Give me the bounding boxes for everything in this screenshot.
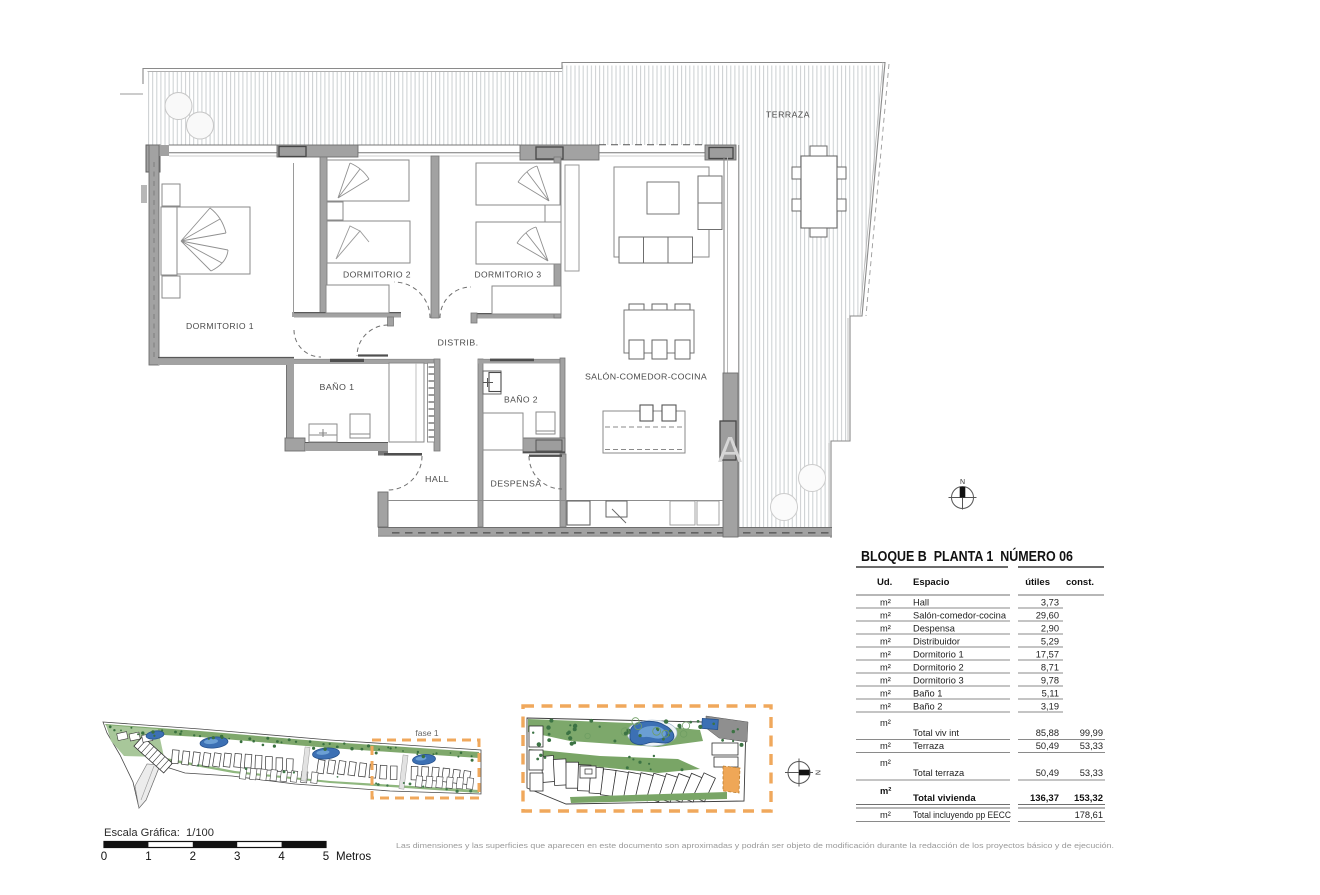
svg-text:Dormitorio 1: Dormitorio 1 xyxy=(913,650,964,660)
svg-text:50,49: 50,49 xyxy=(1036,768,1059,778)
svg-text:m²: m² xyxy=(880,598,891,608)
svg-text:Distribuidor: Distribuidor xyxy=(913,637,960,647)
svg-text:m²: m² xyxy=(880,689,891,699)
svg-text:DORMITORIO 3: DORMITORIO 3 xyxy=(475,271,542,280)
svg-text:Ud.: Ud. xyxy=(877,577,892,588)
svg-text:Las dimensiones y las superfic: Las dimensiones y las superficies que ap… xyxy=(396,841,1114,850)
svg-text:Terraza: Terraza xyxy=(913,741,945,751)
svg-text:153,32: 153,32 xyxy=(1074,793,1103,804)
svg-text:1: 1 xyxy=(145,851,151,863)
svg-text:fase 1: fase 1 xyxy=(415,728,438,738)
svg-text:5: 5 xyxy=(323,851,329,863)
svg-text:Escala Gráfica: 1/100: Escala Gráfica: 1/100 xyxy=(104,827,214,839)
svg-text:5,29: 5,29 xyxy=(1041,637,1059,647)
svg-text:Hall: Hall xyxy=(913,598,929,608)
svg-text:5,11: 5,11 xyxy=(1042,689,1059,699)
svg-text:Total incluyendo pp EECC: Total incluyendo pp EECC xyxy=(913,810,1011,820)
svg-text:m²: m² xyxy=(880,786,891,796)
svg-text:HALL: HALL xyxy=(425,475,449,484)
svg-text:Baño 1: Baño 1 xyxy=(913,689,942,699)
svg-text:m²: m² xyxy=(880,810,891,820)
svg-text:3: 3 xyxy=(234,851,240,863)
svg-text:Dormitorio 2: Dormitorio 2 xyxy=(913,663,964,673)
svg-text:BAÑO 1: BAÑO 1 xyxy=(320,382,355,392)
svg-text:m²: m² xyxy=(880,624,891,634)
svg-text:178,61: 178,61 xyxy=(1075,810,1103,820)
svg-text:Total terraza: Total terraza xyxy=(913,768,965,778)
svg-text:SALÓN-COMEDOR-COCINA: SALÓN-COMEDOR-COCINA xyxy=(585,372,707,382)
svg-text:136,37: 136,37 xyxy=(1030,793,1059,804)
svg-text:Baño 2: Baño 2 xyxy=(913,702,942,712)
svg-text:Dormitorio 3: Dormitorio 3 xyxy=(913,676,964,686)
svg-text:TERRAZA: TERRAZA xyxy=(766,111,810,120)
svg-text:DESPENSA: DESPENSA xyxy=(491,480,542,489)
svg-text:m²: m² xyxy=(880,758,891,768)
svg-text:Total viv int: Total viv int xyxy=(913,728,959,738)
svg-text:BLOQUE B PLANTA 1 NÚMERO 06: BLOQUE B PLANTA 1 NÚMERO 06 xyxy=(861,547,1073,565)
svg-text:m²: m² xyxy=(880,637,891,647)
svg-text:m²: m² xyxy=(880,663,891,673)
svg-text:m²: m² xyxy=(880,741,891,751)
svg-text:3,19: 3,19 xyxy=(1041,702,1059,712)
svg-text:85,88: 85,88 xyxy=(1036,728,1059,738)
svg-text:m²: m² xyxy=(880,718,891,728)
svg-text:50,49: 50,49 xyxy=(1036,741,1059,751)
svg-text:Metros: Metros xyxy=(336,851,371,863)
svg-text:29,60: 29,60 xyxy=(1036,611,1059,621)
svg-text:DISTRIB.: DISTRIB. xyxy=(438,339,479,348)
svg-text:0: 0 xyxy=(101,851,107,863)
svg-text:8,71: 8,71 xyxy=(1041,663,1059,673)
svg-text:2: 2 xyxy=(190,851,196,863)
svg-text:4: 4 xyxy=(278,851,285,863)
svg-text:53,33: 53,33 xyxy=(1080,768,1103,778)
svg-text:m²: m² xyxy=(880,611,891,621)
svg-text:m²: m² xyxy=(880,702,891,712)
svg-text:Total vivienda: Total vivienda xyxy=(913,793,976,804)
svg-text:m²: m² xyxy=(880,676,891,686)
svg-text:A: A xyxy=(718,429,742,470)
svg-text:Despensa: Despensa xyxy=(913,624,956,634)
svg-text:N: N xyxy=(960,479,965,486)
svg-text:m²: m² xyxy=(880,650,891,660)
svg-text:DORMITORIO 2: DORMITORIO 2 xyxy=(343,271,411,280)
svg-text:BAÑO 2: BAÑO 2 xyxy=(504,395,538,405)
svg-text:útiles: útiles xyxy=(1025,577,1050,588)
svg-text:const.: const. xyxy=(1066,577,1094,588)
svg-text:3,73: 3,73 xyxy=(1041,598,1059,608)
svg-text:17,57: 17,57 xyxy=(1036,650,1059,660)
svg-text:53,33: 53,33 xyxy=(1080,741,1103,751)
svg-text:9,78: 9,78 xyxy=(1041,676,1059,686)
svg-text:N: N xyxy=(814,770,821,775)
svg-text:DORMITORIO 1: DORMITORIO 1 xyxy=(186,322,254,331)
svg-text:99,99: 99,99 xyxy=(1080,728,1103,738)
svg-text:Espacio: Espacio xyxy=(913,577,950,588)
svg-text:2,90: 2,90 xyxy=(1041,624,1059,634)
svg-text:Salón-comedor-cocina: Salón-comedor-cocina xyxy=(913,611,1007,621)
